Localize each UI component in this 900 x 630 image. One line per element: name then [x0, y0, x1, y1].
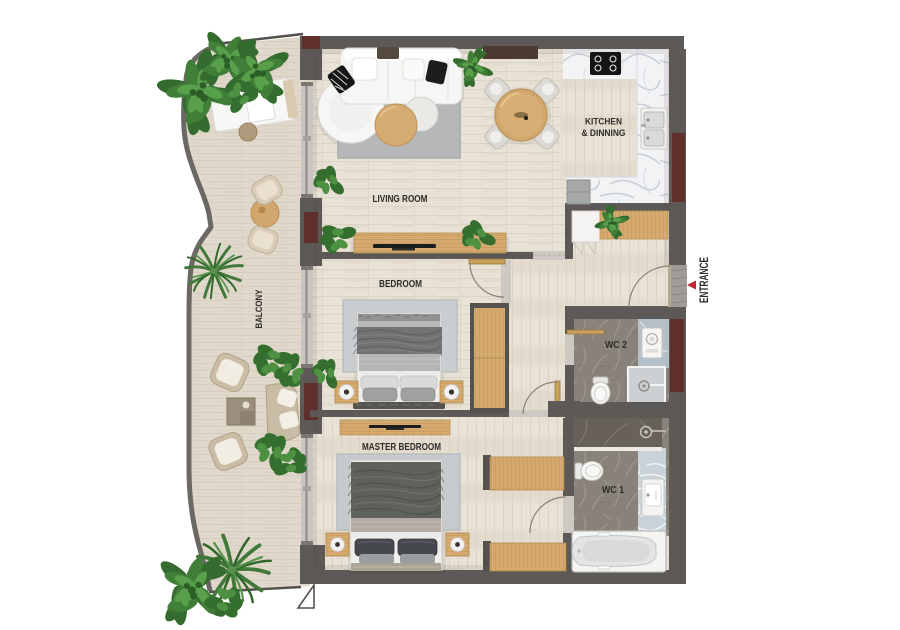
- svg-text:& DINNING: & DINNING: [582, 128, 626, 139]
- svg-text:KITCHEN: KITCHEN: [585, 117, 622, 128]
- svg-text:MASTER BEDROOM: MASTER BEDROOM: [362, 441, 441, 453]
- svg-text:ENTRANCE: ENTRANCE: [699, 257, 711, 303]
- svg-text:BEDROOM: BEDROOM: [379, 279, 422, 290]
- svg-text:WC 1: WC 1: [602, 485, 624, 496]
- svg-text:WC 2: WC 2: [605, 340, 627, 351]
- svg-text:BALCONY: BALCONY: [254, 289, 265, 329]
- svg-text:LIVING ROOM: LIVING ROOM: [373, 194, 428, 205]
